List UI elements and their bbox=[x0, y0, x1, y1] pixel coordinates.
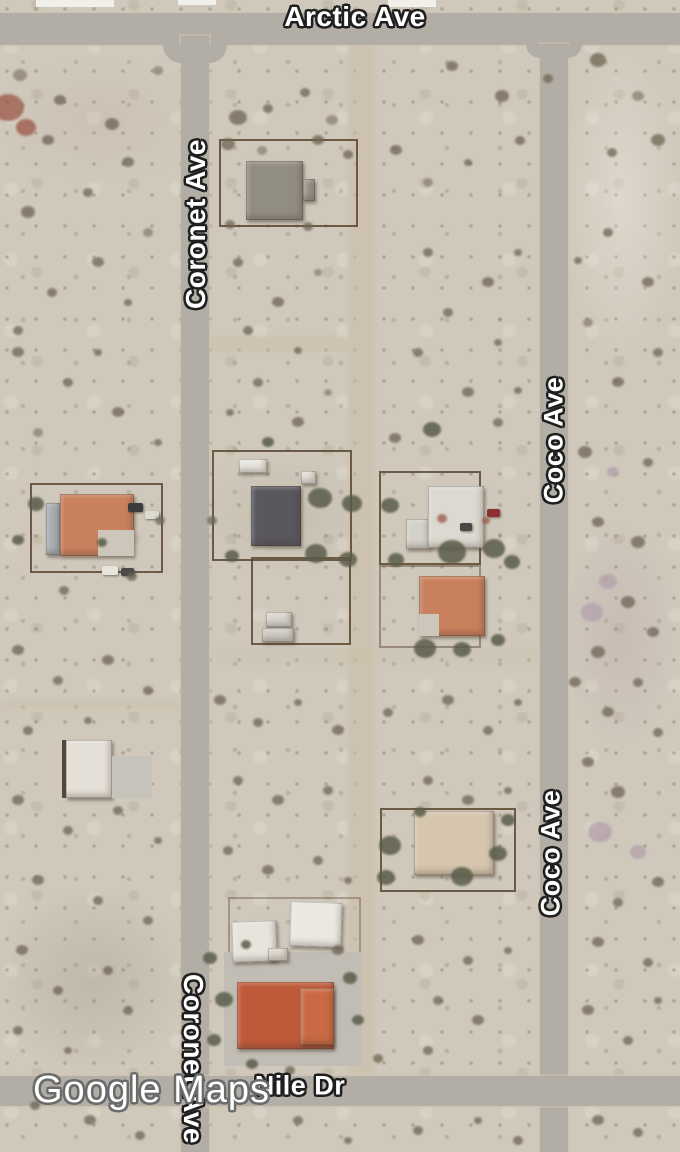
shrub bbox=[437, 514, 447, 523]
shrub bbox=[226, 409, 234, 416]
road-corner bbox=[526, 44, 540, 58]
shrub bbox=[630, 845, 646, 859]
tree bbox=[215, 992, 233, 1007]
shrub bbox=[373, 1054, 383, 1063]
shrub bbox=[332, 945, 344, 955]
shrub bbox=[303, 222, 313, 231]
shrub bbox=[33, 428, 43, 437]
shrub bbox=[53, 676, 63, 685]
shrub bbox=[344, 877, 352, 884]
tree bbox=[305, 544, 327, 563]
shrub bbox=[592, 937, 604, 947]
tree bbox=[491, 634, 505, 646]
shrub bbox=[103, 966, 113, 975]
shrub bbox=[643, 458, 653, 467]
shrub bbox=[653, 728, 663, 737]
building-arctic-house-wing bbox=[303, 179, 315, 201]
shrub bbox=[262, 865, 274, 875]
shrub bbox=[207, 516, 217, 525]
tree bbox=[504, 555, 520, 569]
tree bbox=[377, 870, 395, 885]
shrub bbox=[332, 725, 344, 735]
terrain-patch bbox=[565, 45, 680, 355]
shrub bbox=[93, 896, 103, 905]
road-label-coco-ave-south: Coco Ave bbox=[536, 790, 567, 917]
shrub bbox=[122, 157, 134, 167]
shrub bbox=[592, 517, 604, 527]
tree bbox=[241, 940, 251, 949]
shrub bbox=[464, 159, 472, 166]
building-nile-shed-1 bbox=[289, 901, 343, 948]
tree bbox=[451, 867, 473, 886]
shrub bbox=[443, 308, 453, 317]
shrub bbox=[21, 206, 35, 218]
tree bbox=[423, 422, 441, 437]
shrub bbox=[13, 326, 23, 335]
road-label-arctic-ave: Arctic Ave bbox=[284, 1, 425, 33]
tree bbox=[483, 539, 505, 558]
shrub bbox=[632, 91, 644, 101]
building-nile-shed-3 bbox=[268, 948, 288, 961]
shrub bbox=[263, 104, 273, 113]
shrub bbox=[623, 1036, 633, 1045]
shrub bbox=[272, 297, 284, 307]
shrub bbox=[514, 387, 522, 394]
shrub bbox=[13, 69, 27, 81]
car bbox=[128, 503, 143, 512]
tree bbox=[342, 495, 362, 512]
shrub bbox=[16, 945, 28, 955]
shrub bbox=[293, 1116, 303, 1125]
shrub bbox=[294, 699, 302, 706]
shrub bbox=[64, 1047, 72, 1054]
shrub bbox=[607, 467, 619, 477]
tree bbox=[343, 972, 357, 984]
shrub bbox=[423, 248, 433, 257]
shrub bbox=[54, 95, 66, 105]
shrub bbox=[272, 795, 284, 805]
shrub bbox=[642, 277, 654, 287]
shrub bbox=[494, 339, 502, 346]
shrub bbox=[135, 1131, 145, 1140]
shrub bbox=[154, 439, 162, 446]
shrub bbox=[143, 228, 153, 237]
building-coco-south-house-notch bbox=[419, 614, 439, 636]
tree bbox=[379, 836, 401, 855]
shrub bbox=[581, 603, 603, 622]
building-west-small-pad bbox=[112, 756, 152, 798]
shrub bbox=[442, 695, 454, 705]
road-corner bbox=[163, 45, 181, 63]
shrub bbox=[483, 726, 493, 735]
shrub bbox=[63, 378, 73, 387]
building-nile-house-east-wing bbox=[300, 988, 334, 1045]
car bbox=[460, 523, 472, 531]
tree bbox=[203, 952, 217, 964]
shrub bbox=[47, 288, 57, 297]
tree bbox=[97, 538, 107, 547]
building-center-outbuilding bbox=[301, 471, 316, 484]
shrub bbox=[84, 1115, 96, 1125]
shrub bbox=[94, 349, 102, 356]
shrub bbox=[13, 1026, 23, 1035]
shrub bbox=[463, 956, 473, 965]
shrub bbox=[153, 66, 163, 75]
shrub bbox=[413, 1126, 423, 1135]
building-coco-bottom-house bbox=[414, 811, 494, 875]
shrub bbox=[326, 115, 338, 125]
shrub bbox=[389, 433, 401, 443]
shrub bbox=[23, 726, 33, 735]
shrub bbox=[123, 1006, 133, 1015]
shrub bbox=[607, 148, 617, 157]
shrub bbox=[423, 1046, 433, 1055]
map-canvas[interactable]: Arctic Ave Coronet Ave Coco Ave Coco Ave… bbox=[0, 0, 680, 1152]
shrub bbox=[233, 258, 243, 267]
shrub bbox=[233, 776, 243, 785]
shrub bbox=[105, 118, 119, 130]
road-label-coronet-ave-south: Coronet Ave bbox=[177, 974, 209, 1144]
building-north-edge-1 bbox=[36, 0, 114, 7]
shrub bbox=[633, 678, 643, 687]
car bbox=[102, 566, 118, 575]
shrub bbox=[12, 347, 24, 357]
shrub bbox=[602, 707, 614, 717]
shrub bbox=[652, 877, 664, 887]
tree bbox=[12, 535, 24, 545]
shrub bbox=[243, 326, 253, 335]
shrub bbox=[588, 822, 612, 842]
shrub bbox=[102, 655, 114, 665]
shrub bbox=[257, 146, 267, 155]
shrub bbox=[300, 88, 310, 97]
shrub bbox=[514, 699, 522, 706]
road-corner bbox=[209, 45, 227, 63]
shrub bbox=[578, 446, 592, 458]
shrub bbox=[53, 986, 63, 995]
shrub bbox=[423, 776, 433, 785]
shrub bbox=[84, 717, 92, 724]
shrub bbox=[633, 1128, 643, 1137]
tree bbox=[308, 488, 332, 508]
building-west-small-house bbox=[66, 740, 112, 798]
building-center-house bbox=[251, 486, 301, 546]
shrub bbox=[482, 517, 490, 524]
tree bbox=[438, 540, 466, 564]
shrub bbox=[324, 389, 332, 396]
google-maps-watermark[interactable]: Google Maps bbox=[33, 1069, 270, 1112]
shrub bbox=[92, 257, 104, 267]
tree bbox=[414, 639, 436, 658]
shrub bbox=[344, 1137, 352, 1144]
building-center-south-shed-2 bbox=[262, 628, 294, 642]
shrub bbox=[83, 188, 93, 197]
shrub bbox=[214, 695, 226, 705]
shrub bbox=[643, 958, 653, 967]
shrub bbox=[63, 826, 73, 835]
shrub bbox=[514, 249, 522, 256]
shrub bbox=[225, 220, 235, 229]
shrub bbox=[603, 228, 613, 237]
shrub bbox=[599, 574, 617, 589]
shrub bbox=[612, 377, 624, 387]
shrub bbox=[59, 586, 69, 595]
shrub bbox=[221, 138, 235, 150]
shrub bbox=[651, 134, 665, 146]
shrub bbox=[446, 61, 458, 71]
shrub bbox=[433, 996, 443, 1005]
shrub bbox=[574, 257, 582, 264]
terrain-patch bbox=[0, 890, 185, 1070]
shrub bbox=[413, 348, 423, 357]
shrub bbox=[543, 74, 553, 83]
tree bbox=[339, 552, 357, 567]
tree bbox=[414, 807, 426, 817]
shrub bbox=[653, 348, 663, 357]
shrub bbox=[474, 1117, 482, 1124]
tree bbox=[501, 814, 515, 826]
shrub bbox=[113, 806, 123, 815]
dirt-track-cross-south bbox=[209, 650, 540, 662]
dirt-track-cross-north bbox=[209, 336, 348, 352]
shrub bbox=[143, 686, 153, 695]
shrub bbox=[493, 418, 503, 427]
shrub bbox=[582, 1005, 594, 1015]
shrub bbox=[390, 145, 402, 155]
shrub bbox=[515, 136, 525, 145]
building-north-edge-2 bbox=[178, 0, 216, 5]
shrub bbox=[312, 135, 324, 145]
shrub bbox=[314, 269, 322, 276]
shrub bbox=[583, 318, 593, 327]
shrub bbox=[294, 347, 302, 354]
shrub bbox=[412, 935, 424, 945]
shrub bbox=[513, 1136, 523, 1145]
shrub bbox=[482, 277, 494, 287]
shrub bbox=[32, 875, 44, 885]
shrub bbox=[613, 898, 623, 907]
tree bbox=[453, 642, 471, 657]
tree bbox=[207, 1034, 221, 1046]
shrub bbox=[12, 795, 24, 805]
shrub bbox=[292, 417, 304, 427]
shrub bbox=[423, 178, 433, 187]
tree bbox=[28, 497, 44, 511]
terrain-patch bbox=[560, 520, 680, 750]
shrub bbox=[462, 387, 474, 397]
tree bbox=[225, 550, 239, 562]
shrub bbox=[569, 677, 581, 687]
tree bbox=[262, 437, 274, 447]
shrub bbox=[654, 997, 662, 1004]
building-coco-north-house-wing bbox=[406, 519, 430, 549]
building-west-house-carport bbox=[46, 503, 60, 555]
shrub bbox=[621, 596, 635, 608]
tree bbox=[381, 498, 399, 513]
shrub bbox=[154, 837, 162, 844]
tree bbox=[246, 1059, 258, 1069]
shrub bbox=[143, 916, 153, 925]
shrub bbox=[504, 787, 512, 794]
shrub bbox=[253, 378, 263, 387]
tree bbox=[489, 846, 507, 861]
shrub bbox=[155, 516, 165, 525]
building-center-trailer bbox=[239, 459, 267, 473]
shrub bbox=[592, 1115, 604, 1125]
shrub bbox=[42, 135, 54, 145]
shrub bbox=[647, 627, 659, 637]
tree bbox=[352, 1015, 364, 1025]
shrub bbox=[383, 708, 393, 717]
shrub bbox=[582, 757, 594, 767]
building-arctic-house bbox=[246, 161, 303, 220]
shrub bbox=[504, 947, 512, 954]
building-center-south-shed-1 bbox=[266, 612, 292, 627]
road-label-coco-ave-north: Coco Ave bbox=[539, 377, 570, 504]
shrub bbox=[343, 150, 353, 159]
shrub bbox=[124, 299, 132, 306]
shrub bbox=[462, 795, 474, 805]
shrub bbox=[591, 646, 605, 658]
road-corner bbox=[568, 44, 582, 58]
tree bbox=[388, 553, 404, 567]
shrub bbox=[313, 856, 323, 865]
shrub bbox=[127, 572, 137, 581]
dirt-track-west bbox=[0, 699, 181, 711]
shrub bbox=[0, 94, 24, 121]
shrub bbox=[472, 1015, 484, 1025]
road-coco-ave bbox=[540, 44, 568, 1152]
shrub bbox=[253, 718, 263, 727]
shrub bbox=[495, 90, 509, 102]
shrub bbox=[112, 407, 124, 417]
shrub bbox=[12, 645, 24, 655]
shrub bbox=[223, 846, 233, 855]
shrub bbox=[229, 110, 247, 125]
shrub bbox=[590, 53, 606, 67]
shrub bbox=[16, 119, 36, 136]
shrub bbox=[323, 786, 333, 795]
car bbox=[487, 509, 500, 517]
road-label-coronet-ave-north: Coronet Ave bbox=[180, 139, 212, 309]
shrub bbox=[611, 786, 625, 798]
shrub bbox=[631, 536, 645, 548]
